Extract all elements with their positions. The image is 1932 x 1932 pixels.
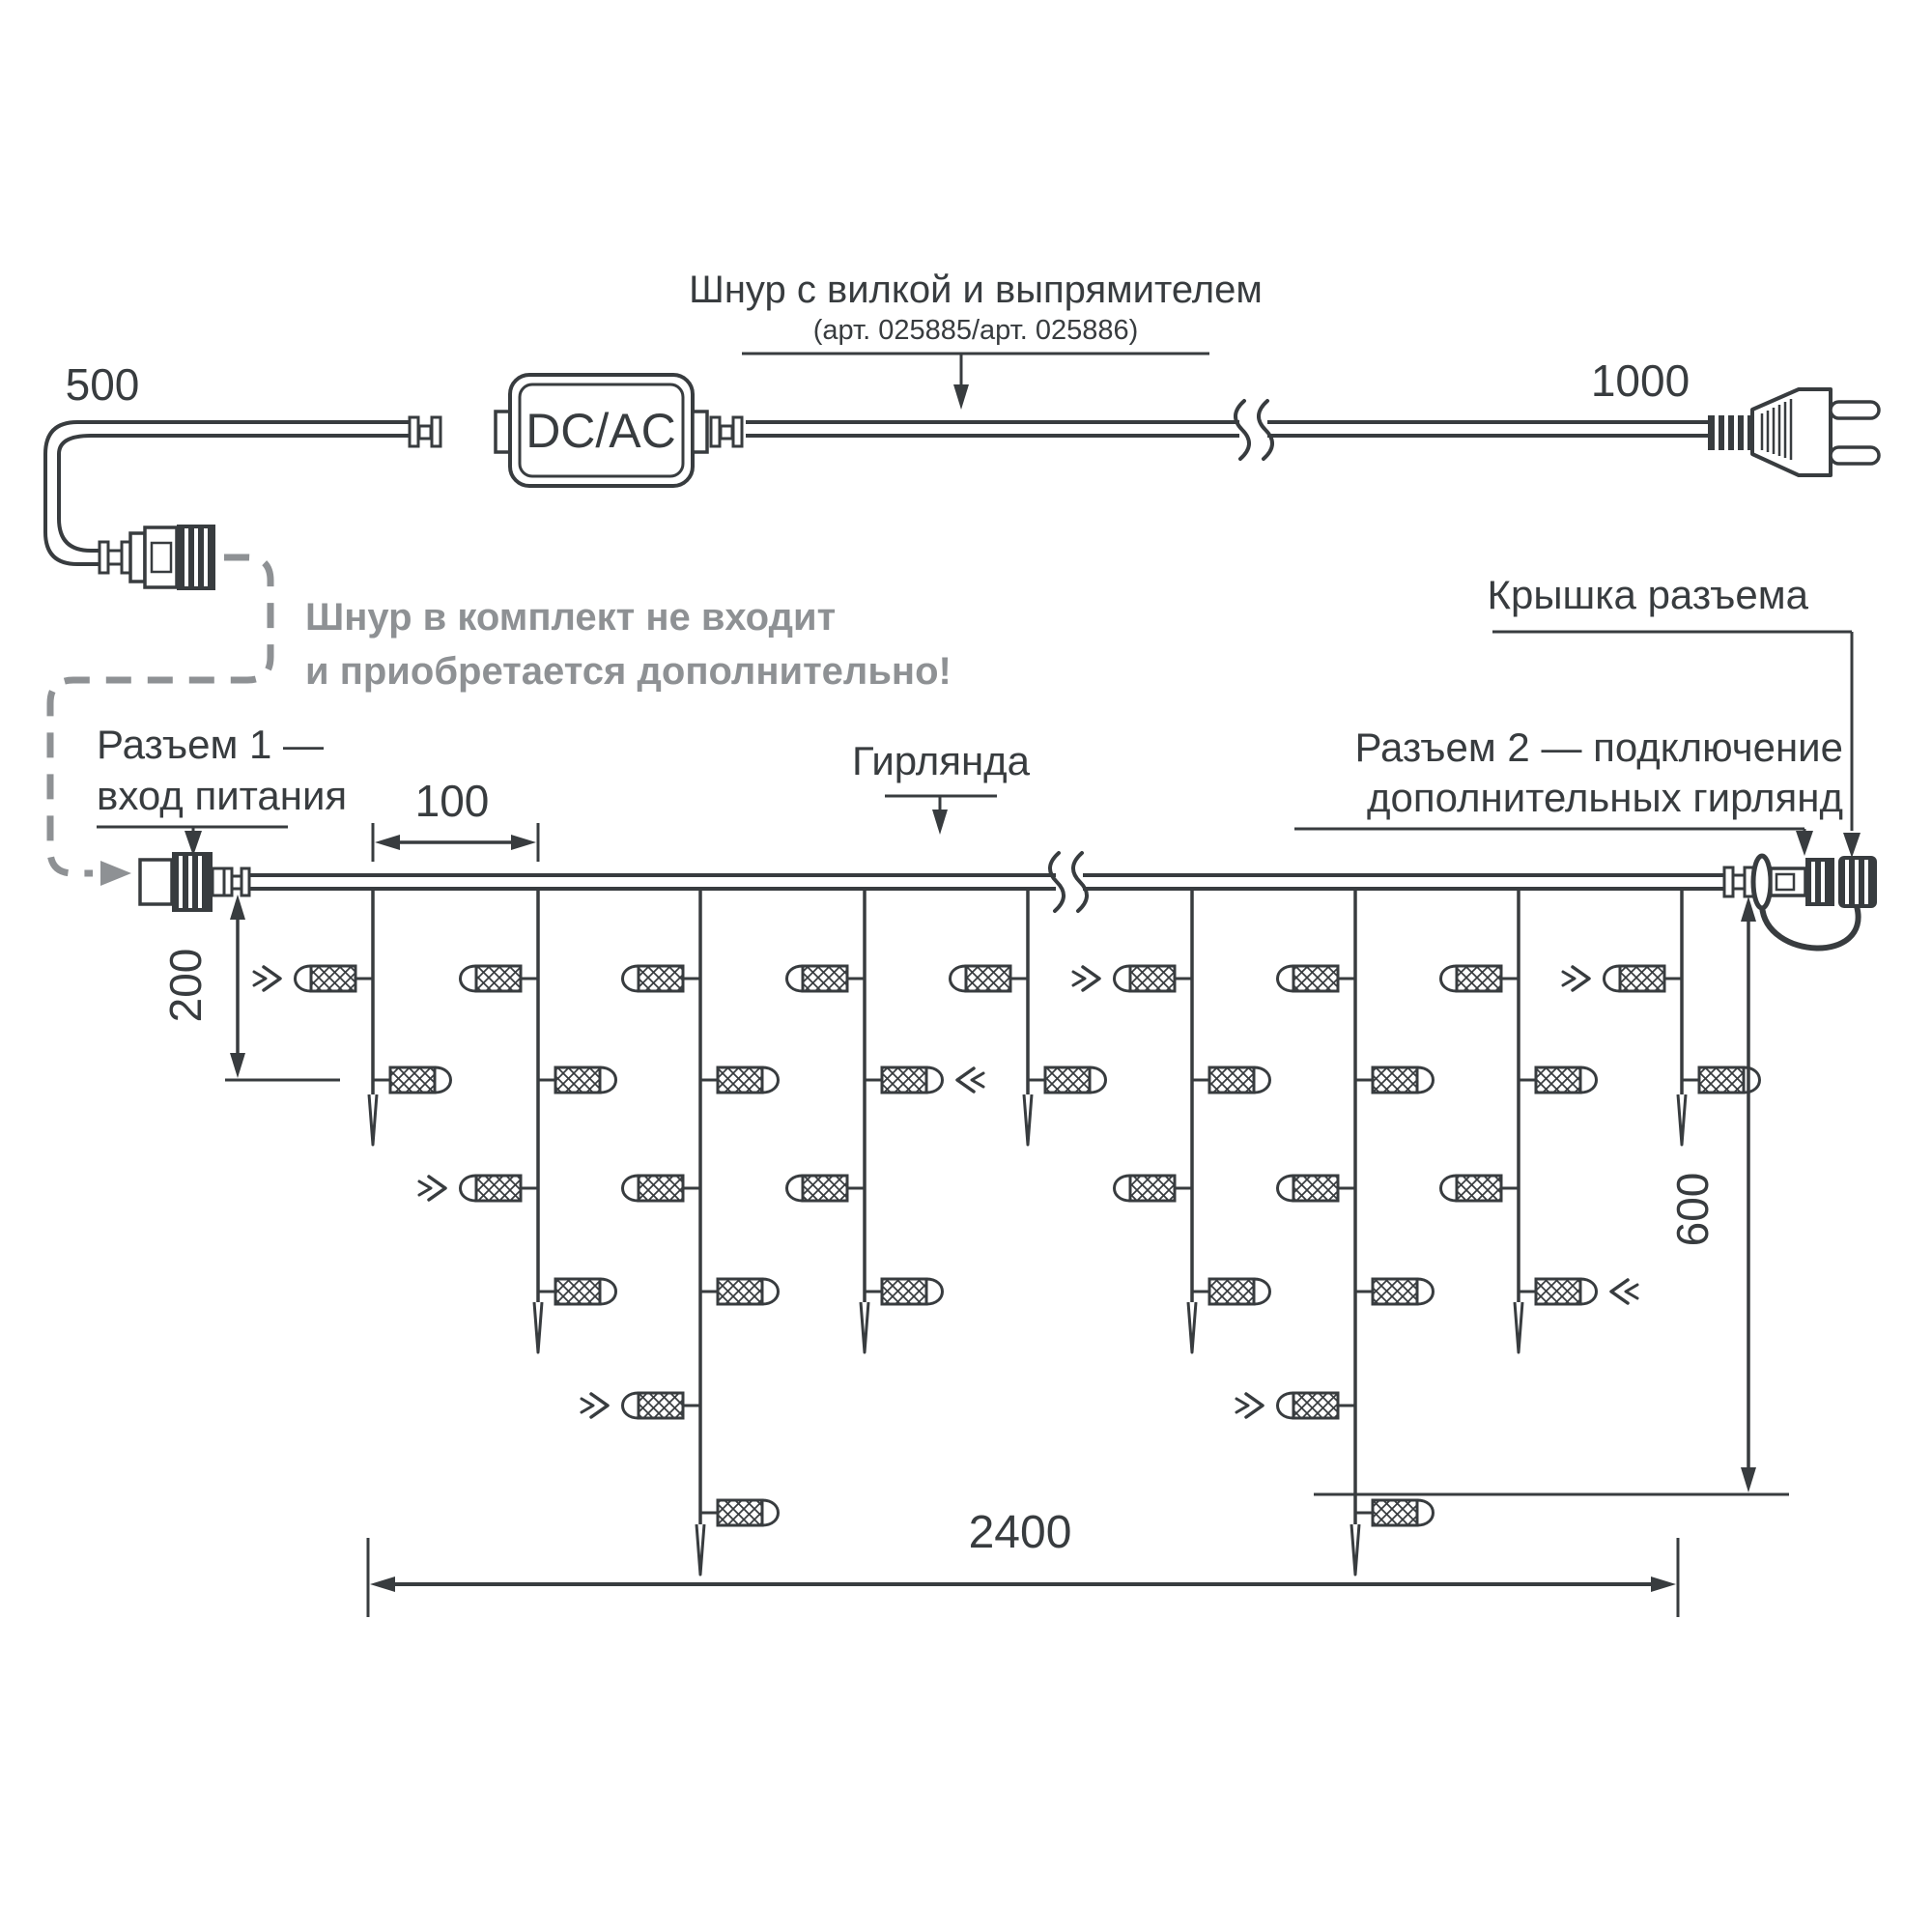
led-bulb-body — [1130, 1176, 1175, 1201]
cord-title: Шнур с вилкой и выпрямителем — [689, 269, 1263, 311]
led-bulb-body — [718, 1067, 762, 1093]
led-bulb-cap — [1115, 1176, 1131, 1201]
led-bulb-cap — [435, 1067, 451, 1093]
led-bulb-cap — [1441, 966, 1458, 991]
drop-wire-tip — [369, 1094, 377, 1145]
light-ray-arrow — [972, 1073, 983, 1087]
led-bulb-cap — [1417, 1067, 1434, 1093]
power-cord-connector — [99, 525, 215, 590]
led-bulb-body — [1045, 1067, 1090, 1093]
led-bulb-body — [803, 966, 847, 991]
led-bulb-cap — [787, 966, 804, 991]
cord-subtitle: (арт. 025885/арт. 025886) — [813, 315, 1139, 346]
note-line1: Шнур в комплект не входит — [305, 596, 836, 639]
dim-500-label: 500 — [66, 359, 140, 410]
led-bulb-cap — [1115, 966, 1131, 991]
dcac-label: DC/AC — [526, 404, 676, 458]
tether-ring — [1753, 856, 1771, 908]
drop-wire-tip — [1515, 1302, 1522, 1352]
led-bulb-body — [555, 1279, 600, 1304]
led-bulb-cap — [1278, 966, 1294, 991]
drop-wire-tip — [696, 1524, 704, 1575]
led-bulb-cap — [1278, 1176, 1294, 1201]
led-bulb-body — [1130, 966, 1175, 991]
led-bulb-body — [1293, 1393, 1338, 1418]
led-bulb-cap — [296, 966, 312, 991]
cord-break-icon — [1236, 401, 1249, 459]
dim-100: 100 — [373, 776, 538, 862]
plug-pin — [1831, 447, 1879, 464]
led-bulb-cap — [461, 1176, 477, 1201]
led-bulb-cap — [926, 1067, 943, 1093]
led-bulb-body — [1373, 1067, 1417, 1093]
led-bulb-body — [1457, 1176, 1501, 1201]
led-bulb-body — [639, 1176, 683, 1201]
drop-wire-tip — [1351, 1524, 1359, 1575]
led-bulb-body — [966, 966, 1010, 991]
drop-wire-tip — [861, 1302, 868, 1352]
led-bulb-cap — [1744, 1067, 1760, 1093]
led-bulb-body — [1373, 1279, 1417, 1304]
led-bulb-body — [1293, 1176, 1338, 1201]
led-bulb-cap — [1441, 1176, 1458, 1201]
light-ray-arrow — [1236, 1399, 1248, 1412]
svg-text:600: 600 — [1667, 1173, 1718, 1247]
cap-tether — [1762, 906, 1859, 949]
svg-text:100: 100 — [415, 776, 490, 826]
led-bulb-body — [1209, 1067, 1254, 1093]
light-ray-arrow — [419, 1181, 431, 1195]
led-bulb-body — [1699, 1067, 1744, 1093]
led-bulb-cap — [1090, 1067, 1106, 1093]
led-bulb-body — [555, 1067, 600, 1093]
light-ray-arrow — [1073, 972, 1085, 985]
diagram-canvas: 500 1000 Шнур с вилкой и выпрямителем (а… — [0, 0, 1932, 1932]
led-bulb-cap — [1254, 1279, 1270, 1304]
dim-600: 600 — [1314, 896, 1789, 1494]
led-bulb-cap — [600, 1067, 616, 1093]
power-cord-wire — [45, 401, 1708, 564]
svg-text:Гирлянда: Гирлянда — [852, 738, 1031, 783]
connector1-label: Разъем 1 — вход питания — [97, 722, 347, 856]
cord-label-arrow — [953, 384, 969, 410]
power-plug — [1708, 389, 1879, 475]
drop-wire-tip — [1678, 1094, 1686, 1145]
led-bulb-cap — [461, 966, 477, 991]
connector2-label: Разъем 2 — подключение дополнительных ги… — [1294, 724, 1843, 856]
dim-1000-label: 1000 — [1591, 355, 1690, 406]
led-bulb-body — [718, 1279, 762, 1304]
led-bulb-cap — [1278, 1393, 1294, 1418]
led-bulb-body — [639, 1393, 683, 1418]
led-bulb-body — [1373, 1500, 1417, 1525]
led-bulb-cap — [623, 1393, 639, 1418]
svg-text:Разъем 2 — подключение: Разъем 2 — подключение — [1354, 724, 1843, 770]
led-bulb-body — [476, 966, 521, 991]
led-bulb-body — [803, 1176, 847, 1201]
wire-break-icon — [1073, 853, 1087, 911]
note-line2: и приобретается дополнительно! — [305, 650, 952, 693]
led-bulb-body — [1209, 1279, 1254, 1304]
light-ray-arrow — [582, 1399, 593, 1412]
led-bulb-cap — [926, 1279, 943, 1304]
svg-text:Крышка разъема: Крышка разъема — [1488, 572, 1809, 617]
led-bulb-body — [639, 966, 683, 991]
led-bulb-cap — [787, 1176, 804, 1201]
light-ray-arrow — [1626, 1285, 1637, 1298]
led-bulb-body — [718, 1500, 762, 1525]
svg-text:дополнительных гирлянд: дополнительных гирлянд — [1367, 775, 1843, 820]
led-bulb-cap — [600, 1279, 616, 1304]
connector-2-body — [1805, 858, 1834, 906]
garland-drops — [249, 853, 1760, 1575]
light-ray-arrow — [254, 972, 266, 985]
led-bulb-cap — [762, 1279, 779, 1304]
cord-break-icon — [1259, 401, 1272, 459]
led-bulb-cap — [1254, 1067, 1270, 1093]
led-bulb-body — [390, 1067, 435, 1093]
led-bulb-cap — [762, 1067, 779, 1093]
led-bulb-body — [1536, 1067, 1580, 1093]
drop-wire-tip — [534, 1302, 542, 1352]
garland-section: Разъем 1 — вход питания Гирлянда Разъем … — [97, 572, 1877, 1617]
led-bulb-body — [1293, 966, 1338, 991]
wire-break-icon — [1050, 853, 1064, 911]
svg-text:2400: 2400 — [969, 1507, 1072, 1558]
led-bulb-cap — [1580, 1067, 1597, 1093]
svg-text:200: 200 — [160, 949, 211, 1023]
connector-1 — [140, 852, 249, 912]
led-bulb-cap — [623, 1176, 639, 1201]
led-bulb-body — [1620, 966, 1664, 991]
led-bulb-cap — [623, 966, 639, 991]
led-bulb-body — [882, 1279, 926, 1304]
led-bulb-body — [476, 1176, 521, 1201]
led-bulb-cap — [1605, 966, 1621, 991]
light-ray-arrow — [1563, 972, 1575, 985]
led-bulb-body — [311, 966, 355, 991]
garland-label: Гирлянда — [852, 738, 1031, 835]
led-bulb-cap — [1417, 1279, 1434, 1304]
led-bulb-cap — [951, 966, 967, 991]
led-bulb-cap — [762, 1500, 779, 1525]
led-bulb-cap — [1580, 1279, 1597, 1304]
led-bulb-body — [1457, 966, 1501, 991]
drop-wire-tip — [1188, 1302, 1196, 1352]
svg-text:вход питания: вход питания — [97, 773, 347, 818]
led-bulb-body — [1536, 1279, 1580, 1304]
led-bulb-body — [882, 1067, 926, 1093]
drop-wire-tip — [1024, 1094, 1032, 1145]
svg-text:Разъем 1 —: Разъем 1 — — [97, 722, 324, 767]
dim-2400: 2400 — [368, 1507, 1678, 1617]
plug-pin — [1831, 402, 1879, 418]
led-bulb-cap — [1417, 1500, 1434, 1525]
dashed-arrow — [100, 861, 131, 886]
